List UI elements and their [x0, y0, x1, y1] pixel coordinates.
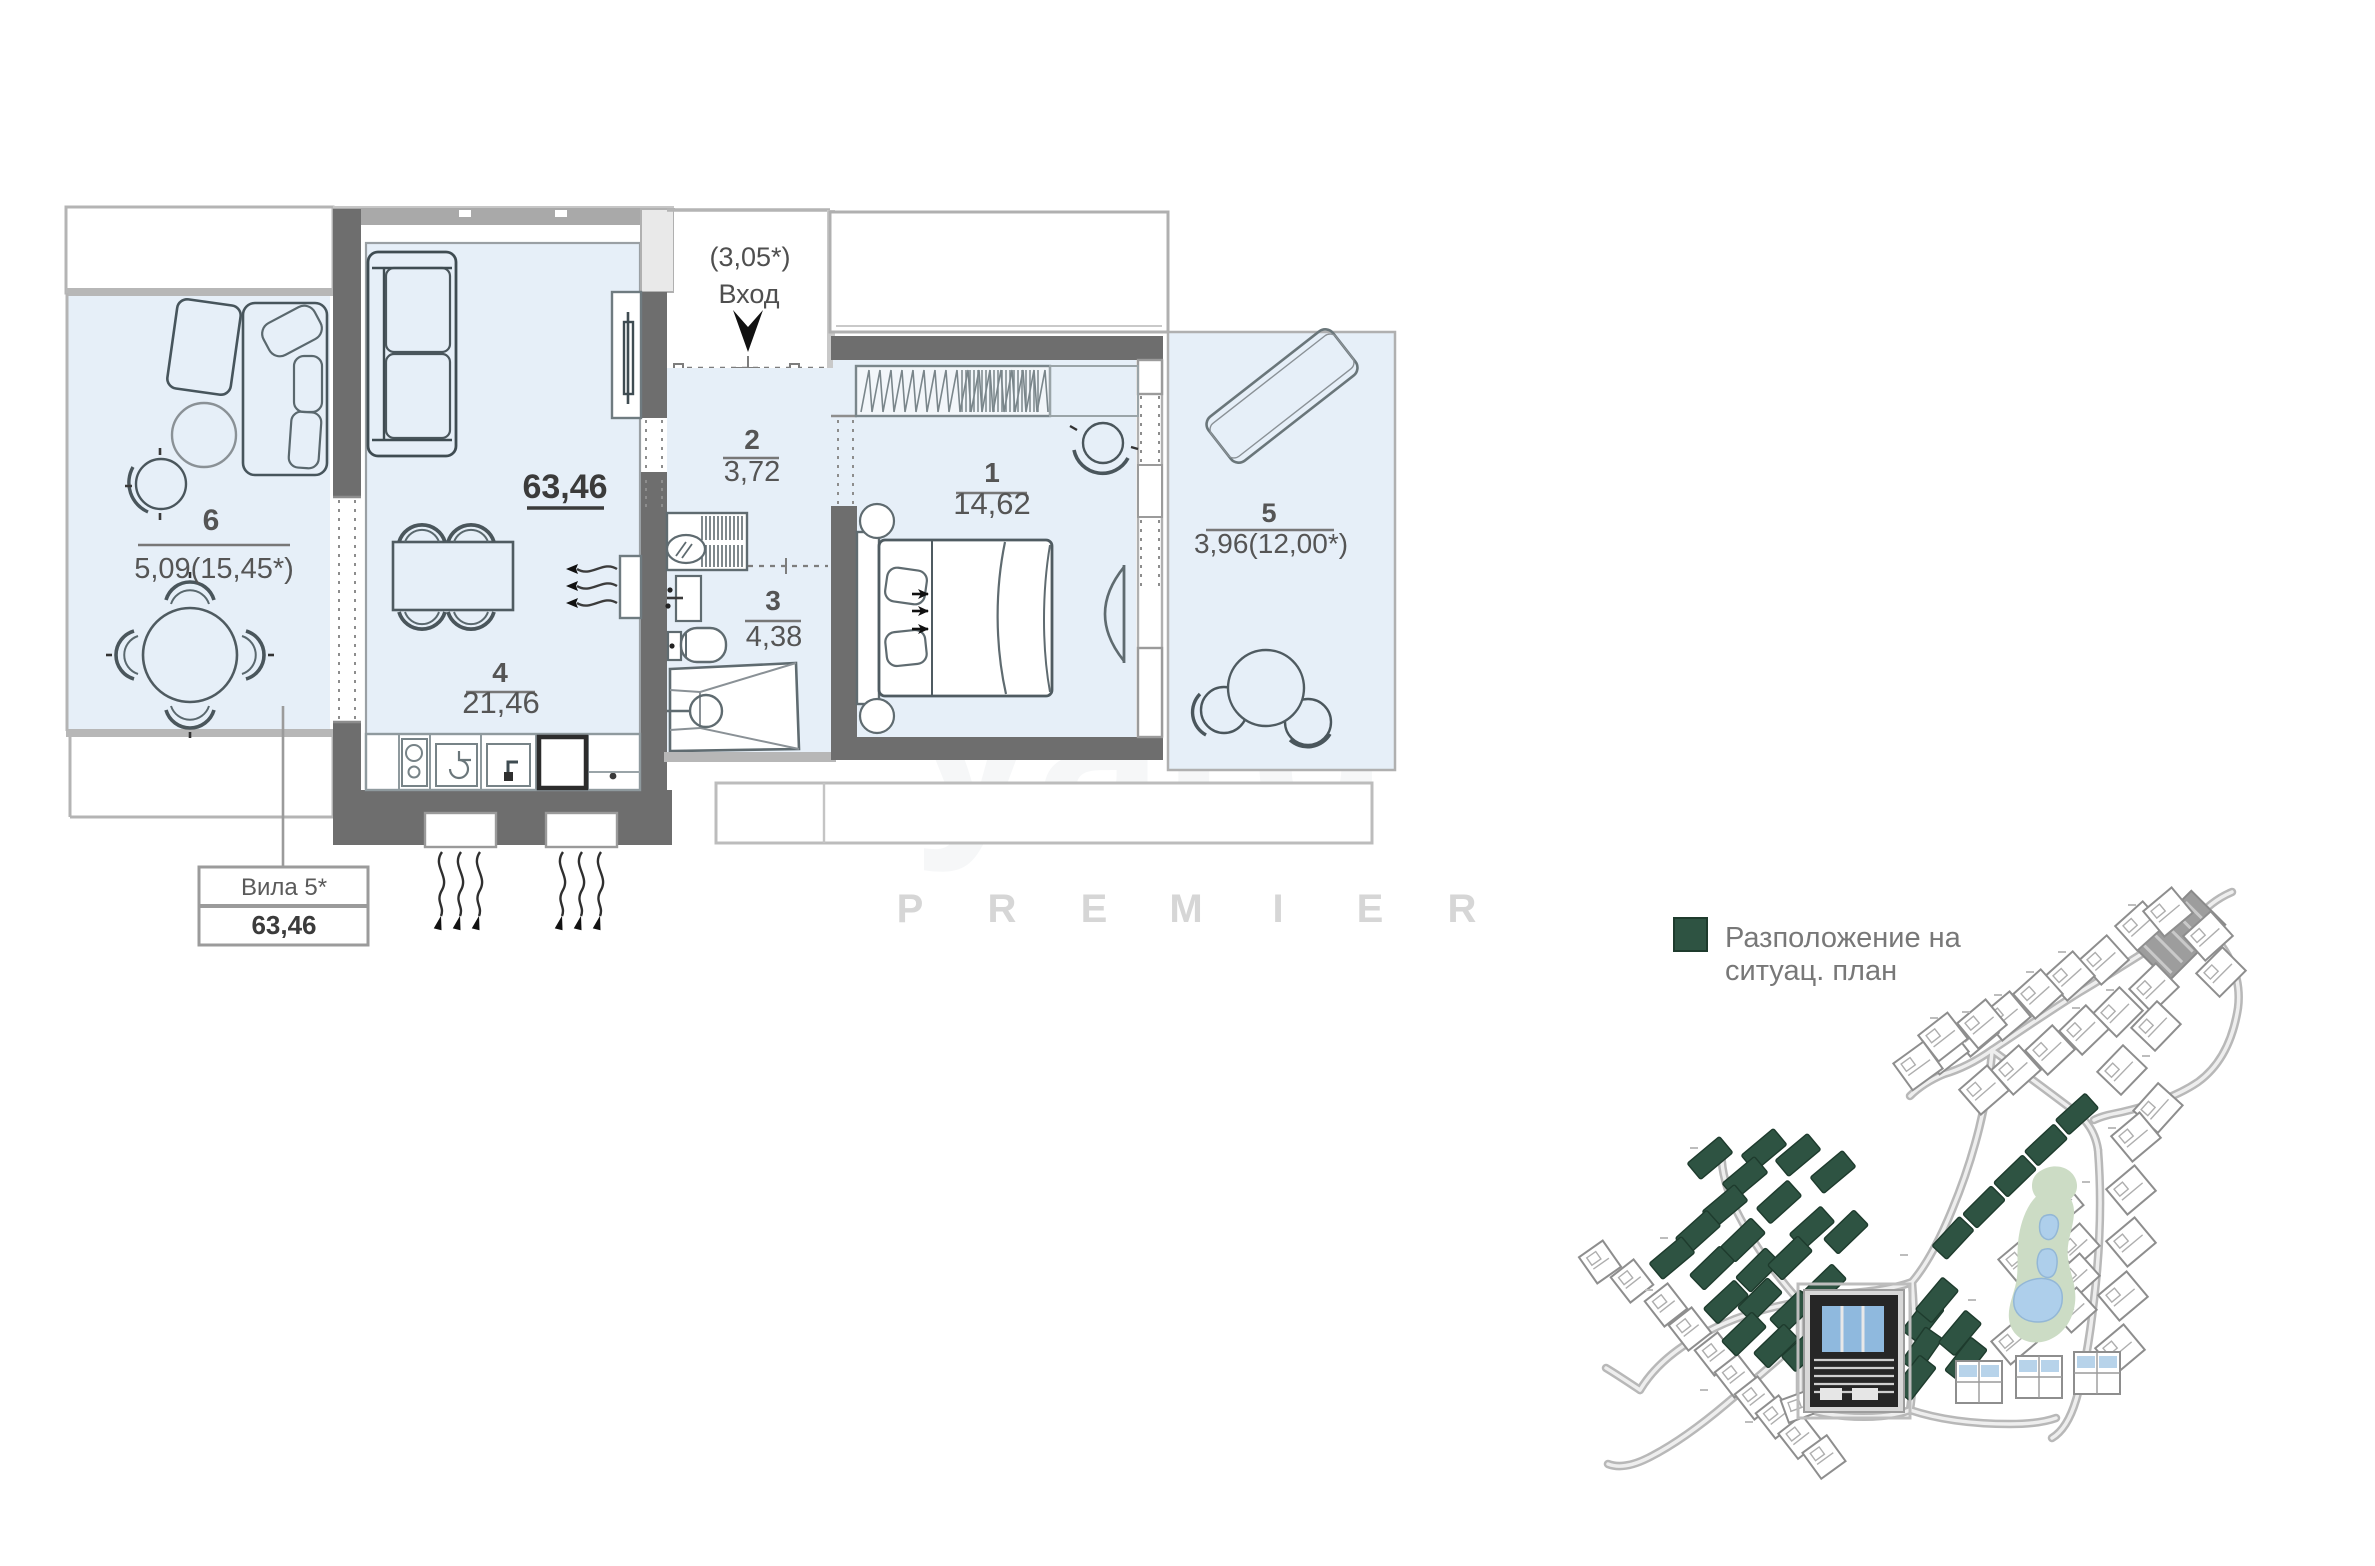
- svg-text:2: 2: [744, 424, 760, 455]
- svg-text:P: P: [897, 887, 924, 931]
- svg-text:(3,05*): (3,05*): [709, 242, 790, 272]
- svg-text:3,96(12,00*): 3,96(12,00*): [1194, 528, 1348, 559]
- svg-text:63,46: 63,46: [522, 468, 607, 506]
- svg-text:6: 6: [203, 504, 220, 537]
- svg-text:3: 3: [765, 585, 781, 616]
- svg-text:5,09(15,45*): 5,09(15,45*): [134, 553, 294, 585]
- svg-text:4,38: 4,38: [746, 621, 802, 653]
- svg-text:Разположение на: Разположение на: [1725, 922, 1962, 954]
- svg-text:14,62: 14,62: [953, 486, 1031, 521]
- svg-text:Вход: Вход: [718, 279, 779, 309]
- svg-text:R: R: [988, 887, 1017, 931]
- svg-text:63,46: 63,46: [251, 910, 316, 940]
- svg-text:5: 5: [1261, 498, 1276, 528]
- svg-text:I: I: [1272, 887, 1283, 931]
- svg-text:21,46: 21,46: [462, 685, 540, 720]
- svg-text:ситуац. план: ситуац. план: [1725, 955, 1897, 987]
- svg-text:M: M: [1169, 887, 1202, 931]
- svg-text:3,72: 3,72: [724, 456, 780, 488]
- svg-text:E: E: [1357, 887, 1384, 931]
- svg-text:E: E: [1081, 887, 1108, 931]
- svg-text:1: 1: [984, 457, 1000, 488]
- svg-text:Вила 5*: Вила 5*: [241, 874, 327, 901]
- svg-text:4: 4: [492, 657, 508, 688]
- svg-text:R: R: [1448, 887, 1477, 931]
